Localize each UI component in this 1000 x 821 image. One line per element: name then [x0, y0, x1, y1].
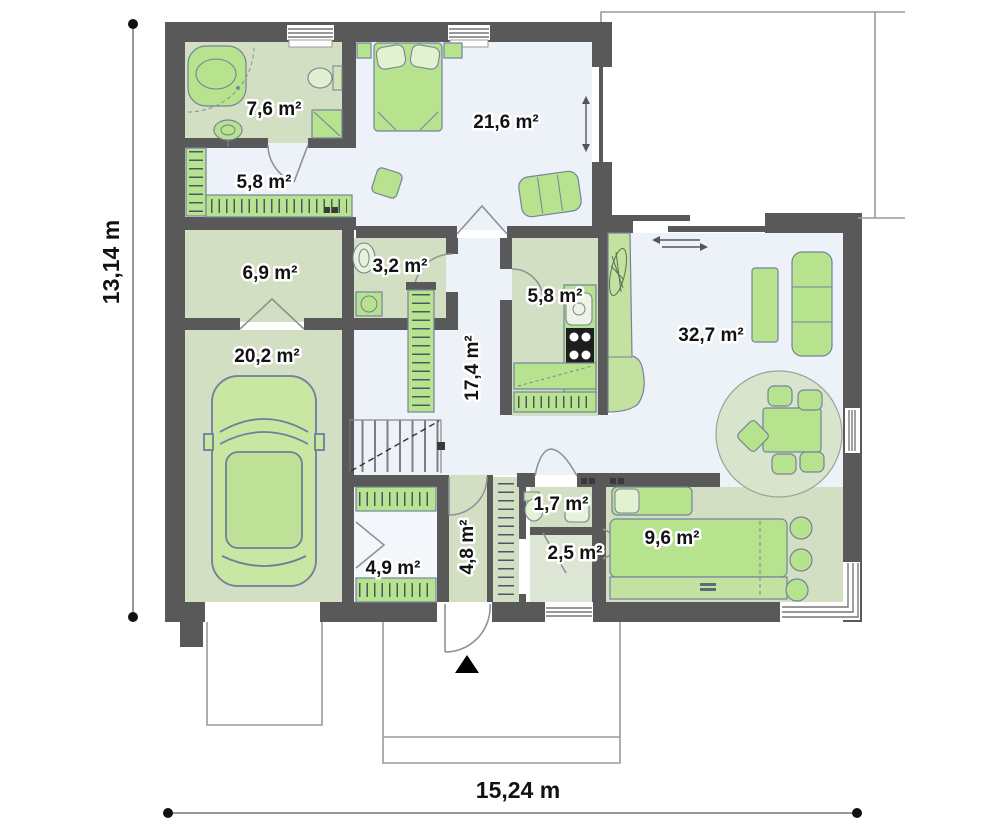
- wall-kitchen-left-2: [500, 300, 512, 415]
- study-pillow: [615, 489, 639, 513]
- label-bathroom: 7,6 m²: [247, 99, 302, 120]
- wall-bottom-3: [492, 602, 545, 622]
- label-garage: 20,2 m²: [234, 346, 299, 367]
- wall-entry-strip-3: [519, 594, 526, 602]
- label-height: 13,14 m: [98, 220, 124, 304]
- stove: [566, 328, 594, 364]
- wall-wc-bottom: [354, 318, 458, 330]
- wall-top: [165, 22, 612, 42]
- chair: [800, 452, 824, 472]
- car: [204, 376, 324, 586]
- chair: [798, 390, 822, 410]
- entrance-arrow: [455, 655, 479, 673]
- wall-bottom-2: [320, 602, 437, 622]
- wall-study-left: [592, 477, 606, 602]
- wall-entry-strip-1: [487, 475, 493, 602]
- wall-band-2: [356, 226, 457, 238]
- sofa: [792, 252, 832, 356]
- wall-band-1: [183, 217, 356, 230]
- wall-kitchen-left-1: [500, 238, 512, 269]
- wall-utility-bottom-2: [304, 318, 342, 330]
- chair: [772, 454, 796, 474]
- wall-stairs-bottom: [354, 475, 437, 487]
- label-closet: 4,9 m²: [366, 558, 421, 579]
- floor-plan-drawing: 7,6 m² 5,8 m² 21,6 m² 6,9 m² 3,2 m² 5,8 …: [0, 0, 1000, 821]
- label-living-room: 32,7 m²: [678, 325, 743, 346]
- living-slider-2: [668, 226, 770, 232]
- label-bedroom: 21,6 m²: [473, 112, 538, 133]
- wall-terrace-1: [592, 42, 612, 67]
- label-corridor: 2,5 m²: [548, 543, 603, 564]
- front-door: [445, 604, 490, 652]
- label-toilet: 1,7 m²: [534, 494, 589, 515]
- car-mirror: [204, 434, 213, 450]
- wall-bottom-1: [165, 602, 205, 622]
- wall-bath-right: [342, 42, 356, 143]
- label-hall: 17,4 m²: [462, 335, 483, 400]
- stairs-newel: [437, 442, 445, 450]
- dimension-height: 13,14 m: [98, 19, 138, 622]
- wall-kitchen-right: [598, 233, 608, 415]
- wall-utility-right: [342, 230, 354, 330]
- label-wardrobe: 5,8 m²: [237, 172, 292, 193]
- label-width: 15,24 m: [476, 777, 560, 803]
- porch-outline: [383, 622, 620, 763]
- bedroom-sofa: [518, 170, 583, 218]
- label-wc: 3,2 m²: [373, 256, 428, 277]
- terrace-slider-track: [599, 67, 603, 162]
- wall-wc-right-2: [446, 292, 458, 318]
- terrace-outline-top: [601, 12, 905, 22]
- wall-left: [165, 22, 185, 622]
- nightstand: [444, 43, 462, 58]
- floor-plan-page: 7,6 m² 5,8 m² 21,6 m² 6,9 m² 3,2 m² 5,8 …: [0, 0, 1000, 821]
- wall-bottom-stub: [180, 622, 203, 647]
- chair: [768, 386, 792, 406]
- wall-garage-right: [342, 330, 354, 602]
- wall-band-3: [507, 226, 612, 238]
- wall-living-top: [765, 213, 862, 233]
- coffee-table: [752, 268, 778, 342]
- pillow: [375, 44, 406, 71]
- pillow: [409, 44, 440, 71]
- wall-utility-bottom-1: [185, 318, 240, 330]
- label-kitchen: 5,8 m²: [528, 286, 583, 307]
- bath-sink: [214, 120, 242, 140]
- label-study: 9,6 m²: [645, 528, 700, 549]
- dining-table: [763, 408, 821, 452]
- car-mirror: [315, 434, 324, 450]
- stool: [786, 579, 808, 601]
- stool: [790, 549, 812, 571]
- label-entry: 4,8 m²: [457, 520, 478, 575]
- dimension-width: 15,24 m: [163, 777, 862, 818]
- wall-entry-left: [437, 475, 449, 602]
- label-utility: 6,9 m²: [243, 263, 298, 284]
- stool: [790, 517, 812, 539]
- living-slider-1: [633, 215, 690, 221]
- wall-toilet-bottom: [530, 527, 592, 535]
- wall-wc-right-1: [446, 238, 458, 254]
- wall-bottom-4: [593, 602, 780, 622]
- floor-entry-strip: [493, 477, 519, 602]
- driveway-outline: [207, 622, 322, 725]
- nightstand: [357, 43, 371, 58]
- hall-wardrobe: [406, 282, 436, 412]
- toilet: [308, 68, 332, 88]
